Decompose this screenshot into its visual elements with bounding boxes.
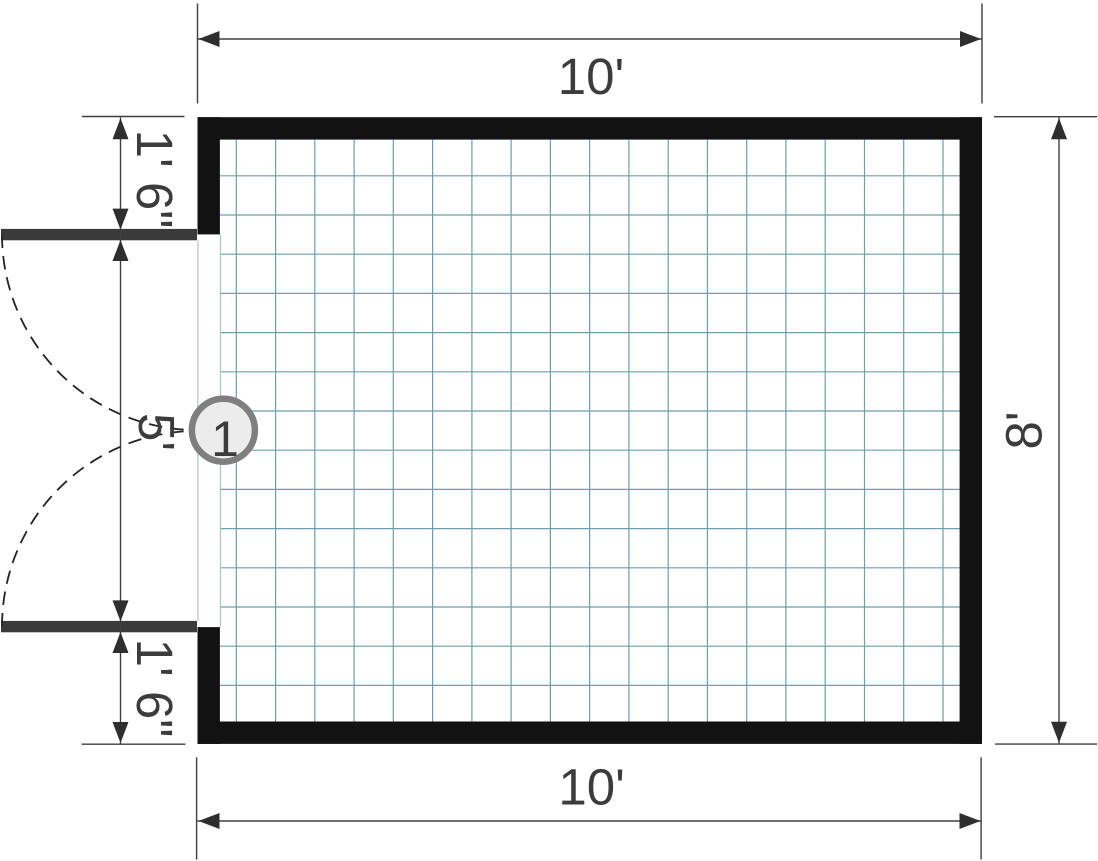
svg-text:1' 6": 1' 6": [126, 639, 183, 738]
svg-text:5': 5': [128, 413, 185, 451]
svg-text:8': 8': [996, 411, 1053, 449]
svg-text:1: 1: [211, 411, 239, 467]
svg-text:1' 6": 1' 6": [126, 130, 183, 229]
svg-text:10': 10': [558, 48, 624, 105]
svg-text:10': 10': [558, 759, 624, 816]
